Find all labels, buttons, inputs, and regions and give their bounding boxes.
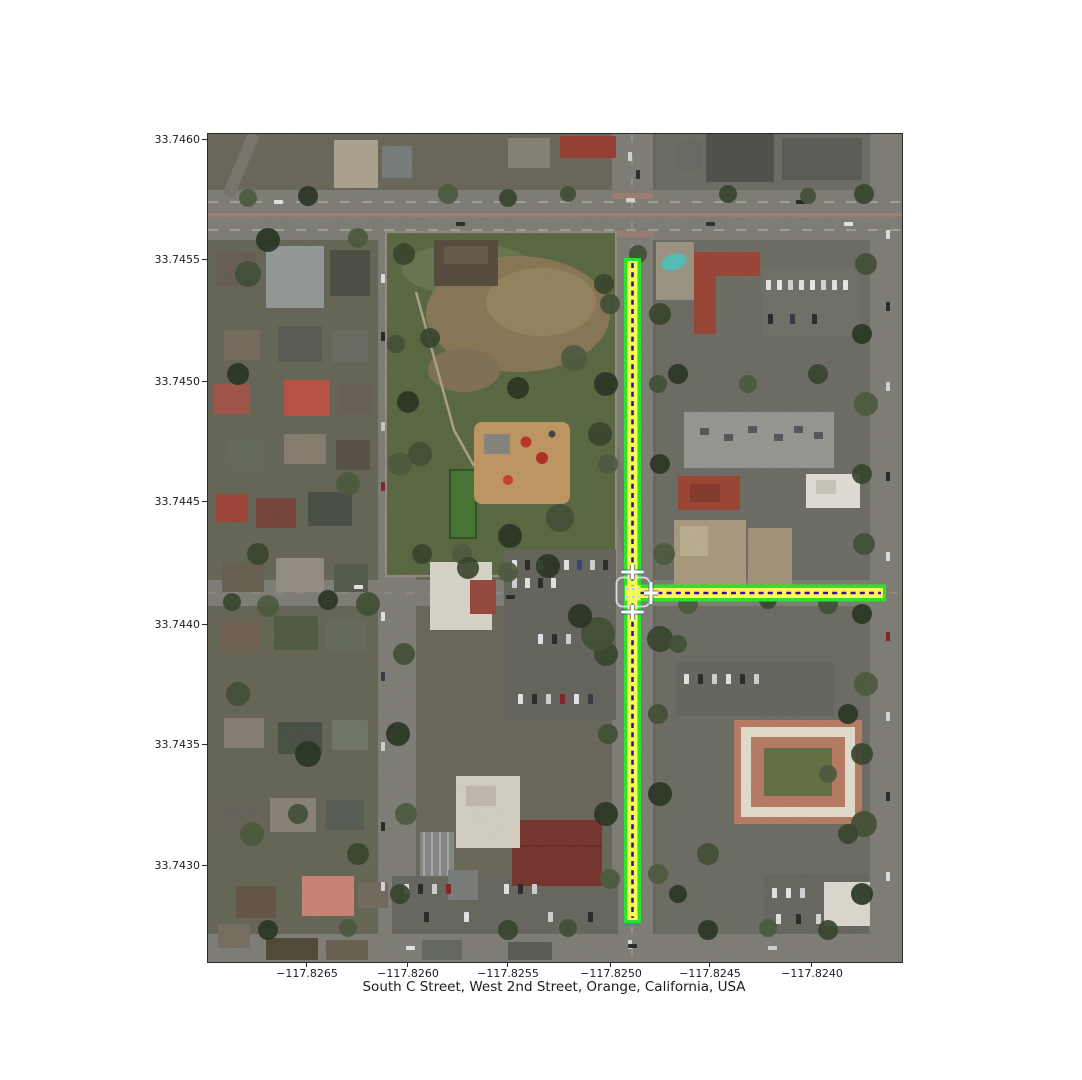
y-tick-label: 33.7455 [58,252,200,268]
y-tick [202,744,207,745]
y-tick-label: 33.7430 [58,858,200,874]
y-tick [202,865,207,866]
y-tick-label: 33.7460 [58,132,200,148]
y-tick [202,381,207,382]
map-plot-area [207,133,903,963]
y-tick-label: 33.7440 [58,617,200,633]
y-tick [202,259,207,260]
y-tick [202,139,207,140]
photo-grain [208,134,902,962]
intersection-fill [625,586,641,601]
figure: 33.7460 33.7455 33.7450 33.7445 33.7440 … [0,0,1082,1080]
y-tick-label: 33.7450 [58,374,200,390]
y-tick [202,624,207,625]
y-tick [202,501,207,502]
y-tick-label: 33.7445 [58,494,200,510]
map-caption: South C Street, West 2nd Street, Orange,… [207,979,901,995]
y-tick-label: 33.7435 [58,737,200,753]
satellite-map [208,134,902,962]
